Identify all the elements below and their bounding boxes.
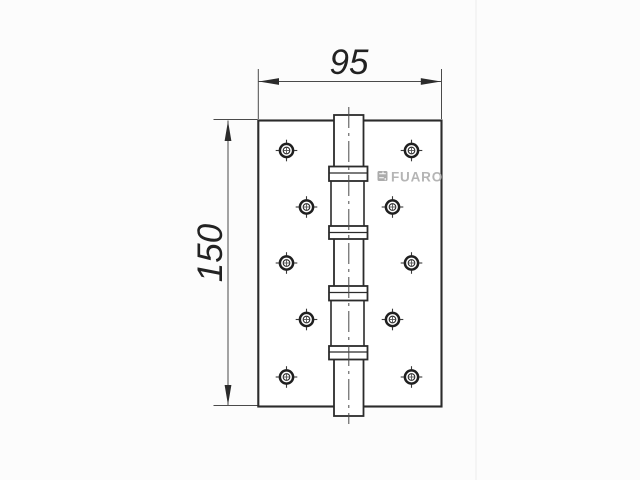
bearing-collar xyxy=(329,286,368,301)
brand-logo-text: FUARO xyxy=(391,170,443,185)
hinge-technical-drawing: 95 150 FUARO xyxy=(0,0,640,480)
knuckle-segment xyxy=(331,300,364,347)
drawing-canvas: 95 150 FUARO xyxy=(0,0,640,480)
bearing-collar xyxy=(329,346,368,360)
width-dimension-label: 95 xyxy=(330,43,369,82)
bearing-collar xyxy=(329,167,368,182)
hinge-barrel xyxy=(329,107,368,424)
knuckle-segment xyxy=(331,181,364,228)
height-dimension-label: 150 xyxy=(191,223,230,282)
